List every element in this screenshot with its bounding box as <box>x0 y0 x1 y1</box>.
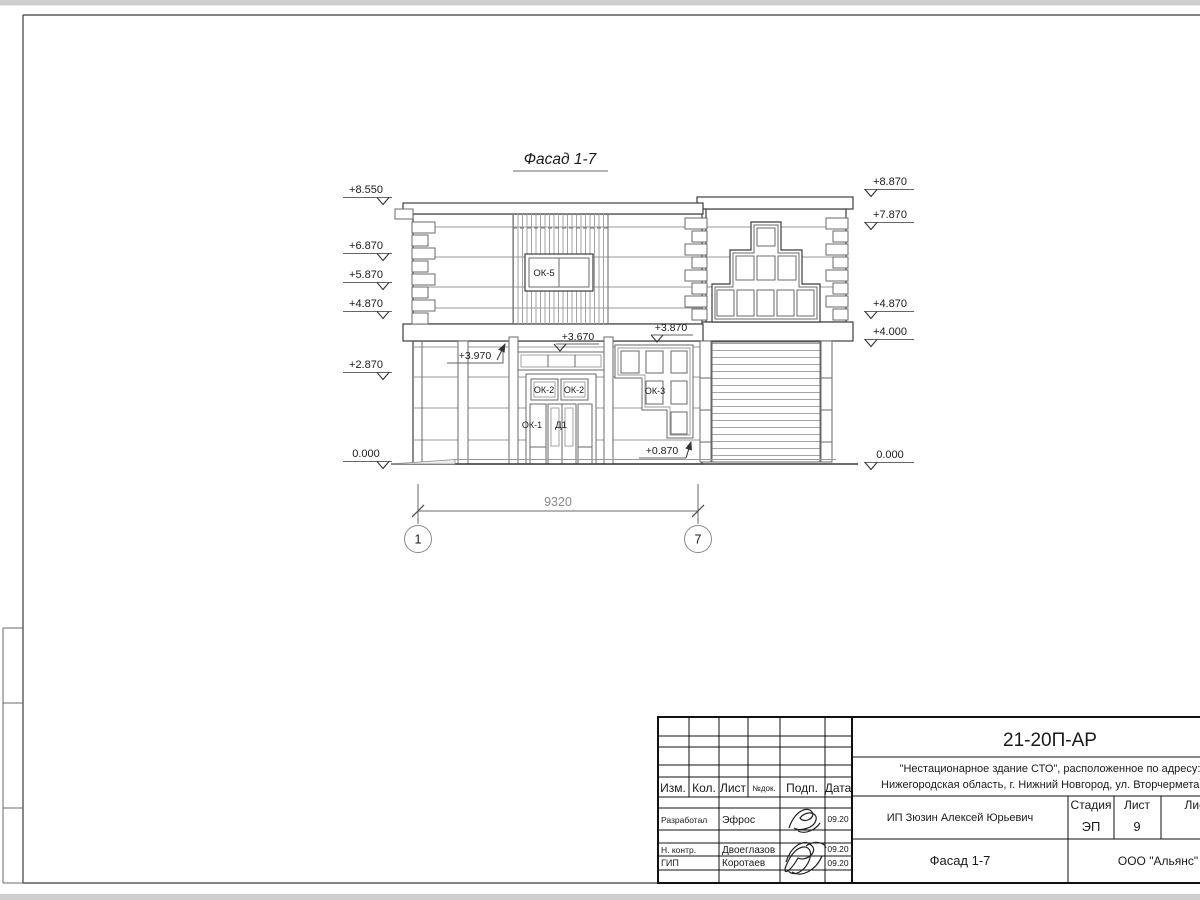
col-izm: Изм. <box>660 781 686 795</box>
row-name: Коротаев <box>722 858 765 869</box>
garage-door-group <box>700 341 832 462</box>
axis-number-7: 7 <box>695 533 702 547</box>
annotation-value: +3.670 <box>562 331 595 343</box>
col-data: Дата <box>825 781 852 795</box>
col-ndok: №док. <box>752 784 775 793</box>
axis-number-1: 1 <box>415 533 422 547</box>
view-title-text: Фасад 1-7 <box>524 151 598 168</box>
client-name: ИП Зюзин Алексей Юрьевич <box>887 812 1034 824</box>
annotation-value: +0.870 <box>646 445 679 457</box>
window-ok1-label: ОК-1 <box>522 420 542 430</box>
row-name: Двоеглазов <box>722 845 775 856</box>
window-ok5: ОК-5 <box>525 254 593 291</box>
drawing-sheet: Фасад 1-7 ОК-5 <box>0 0 1200 900</box>
row-date: 09.20 <box>827 858 849 868</box>
col-list: Лист <box>720 781 747 795</box>
sheet-title: Фасад 1-7 <box>930 853 991 868</box>
roller-shutter <box>712 342 820 462</box>
col-kol: Кол. <box>692 781 716 795</box>
row-date: 09.20 <box>827 844 849 854</box>
elevation-value: 0.000 <box>876 449 904 461</box>
project-description-line2: Нижегородская область, г. Нижний Новгоро… <box>881 779 1200 791</box>
row-date: 09.20 <box>827 814 849 824</box>
project-description-line1: "Нестационарное здание СТО", расположенн… <box>900 763 1200 775</box>
dimension-value: 9320 <box>544 495 572 509</box>
sidelight-right <box>578 404 592 464</box>
elevation-value: +7.870 <box>873 209 907 221</box>
sheet-label: Лист <box>1124 798 1151 812</box>
elevation-value: +2.870 <box>349 359 383 371</box>
col-podp: Подп. <box>786 781 818 795</box>
row-role: Н. контр. <box>661 845 696 855</box>
door-d1-label: Д1 <box>555 420 567 431</box>
window-ok2-right-label: ОК-2 <box>564 385 584 395</box>
elevation-value: +6.870 <box>349 240 383 252</box>
sidelight-ok1 <box>530 404 546 464</box>
company-name: ООО "Альянс" <box>1118 854 1198 868</box>
annotation-value: +3.970 <box>459 350 492 362</box>
elevation-value: 0.000 <box>352 448 380 460</box>
row-role: ГИП <box>661 858 679 868</box>
window-ok3-label: ОК-3 <box>645 386 665 396</box>
stage-value: ЭП <box>1082 819 1101 834</box>
elevation-value: +4.870 <box>873 298 907 310</box>
row-name: Эфрос <box>722 814 755 826</box>
elevation-value: +5.870 <box>349 269 383 281</box>
doc-number: 21-20П-АР <box>1003 730 1097 751</box>
annotation-value: +3.870 <box>655 322 688 334</box>
window-ok5-label: ОК-5 <box>533 268 554 279</box>
sheet-canvas: Фасад 1-7 ОК-5 <box>0 0 1200 900</box>
sheets-label: Листов <box>1185 798 1200 812</box>
entrance-group: ОК-2 ОК-2 ОК-1 Д1 <box>518 352 604 464</box>
stage-label: Стадия <box>1071 798 1112 812</box>
elevation-value: +4.870 <box>349 298 383 310</box>
sheet-number-value: 9 <box>1133 819 1140 834</box>
window-ok2-left-label: ОК-2 <box>534 385 554 395</box>
elevation-value: +8.870 <box>873 176 907 188</box>
elevation-value: +4.000 <box>873 326 907 338</box>
row-role: Разработал <box>661 815 707 825</box>
elevation-value: +8.550 <box>349 184 383 196</box>
